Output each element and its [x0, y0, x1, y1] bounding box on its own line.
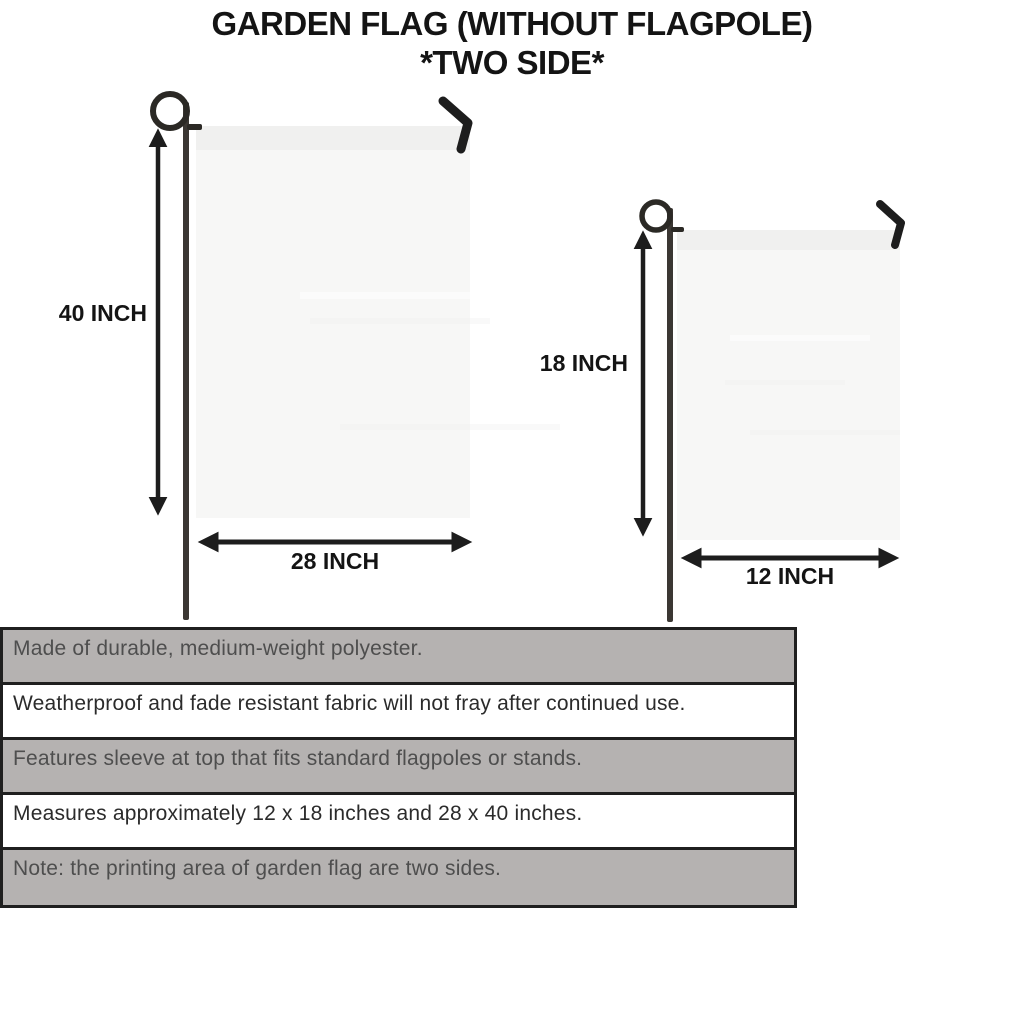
spec-text: Weatherproof and fade resistant fabric w… [13, 692, 686, 715]
large-flag-pole-nub [187, 124, 202, 130]
small-flag-sleeve [677, 230, 900, 250]
large-flag-width-label: 28 INCH [198, 548, 472, 575]
large-flag-pole [183, 102, 189, 620]
large-flag-diagram [153, 94, 560, 620]
garden-flag-infographic: GARDEN FLAG (WITHOUT FLAGPOLE) *TWO SIDE… [0, 0, 1024, 1024]
spec-text: Note: the printing area of garden flag a… [13, 857, 501, 880]
fabric-streak [300, 292, 530, 299]
spec-row-weatherproof: Weatherproof and fade resistant fabric w… [3, 685, 794, 740]
spec-text: Made of durable, medium-weight polyester… [13, 637, 423, 660]
fabric-streak [725, 380, 845, 385]
fabric-streak [340, 424, 560, 430]
large-flag-sleeve [196, 126, 470, 150]
small-flag-width-label: 12 INCH [682, 563, 898, 590]
fabric-streak [310, 318, 490, 324]
large-flag-pole-loop-icon [153, 94, 187, 128]
spec-row-material: Made of durable, medium-weight polyester… [3, 630, 794, 685]
small-flag-height-label: 18 INCH [500, 350, 628, 377]
large-flag-height-label: 40 INCH [20, 300, 147, 327]
small-flag-pole [667, 208, 673, 622]
spec-row-note: Note: the printing area of garden flag a… [3, 850, 794, 905]
fabric-streak [730, 335, 870, 341]
fabric-streak [750, 430, 900, 435]
small-flag-pole-nub [671, 227, 684, 232]
small-flag-pole-loop-icon [642, 202, 670, 230]
spec-table: Made of durable, medium-weight polyester… [0, 627, 797, 908]
spec-row-measures: Measures approximately 12 x 18 inches an… [3, 795, 794, 850]
spec-row-sleeve: Features sleeve at top that fits standar… [3, 740, 794, 795]
spec-text: Measures approximately 12 x 18 inches an… [13, 802, 582, 825]
spec-text: Features sleeve at top that fits standar… [13, 747, 582, 770]
small-flag-diagram [642, 202, 901, 622]
